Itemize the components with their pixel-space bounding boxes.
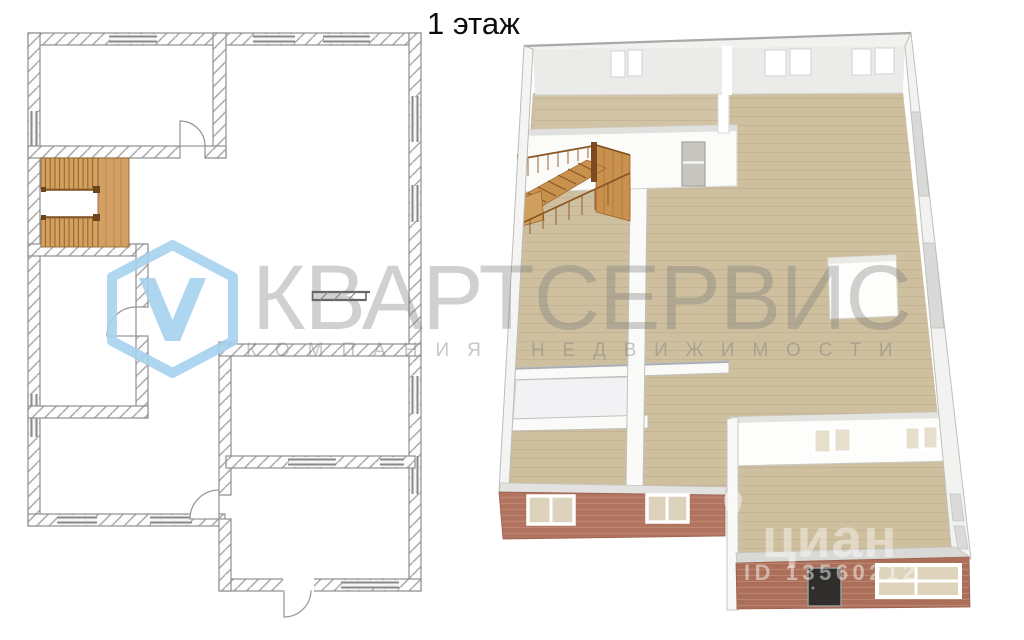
svg-text:1 этаж: 1 этаж [427, 6, 520, 41]
svg-text:НЕДВИЖИМОСТИ: НЕДВИЖИМОСТИ [531, 340, 910, 361]
svg-text:ID 13560212: ID 13560212 [744, 560, 920, 585]
svg-text:КОМПАНИЯ: КОМПАНИЯ [246, 340, 499, 361]
